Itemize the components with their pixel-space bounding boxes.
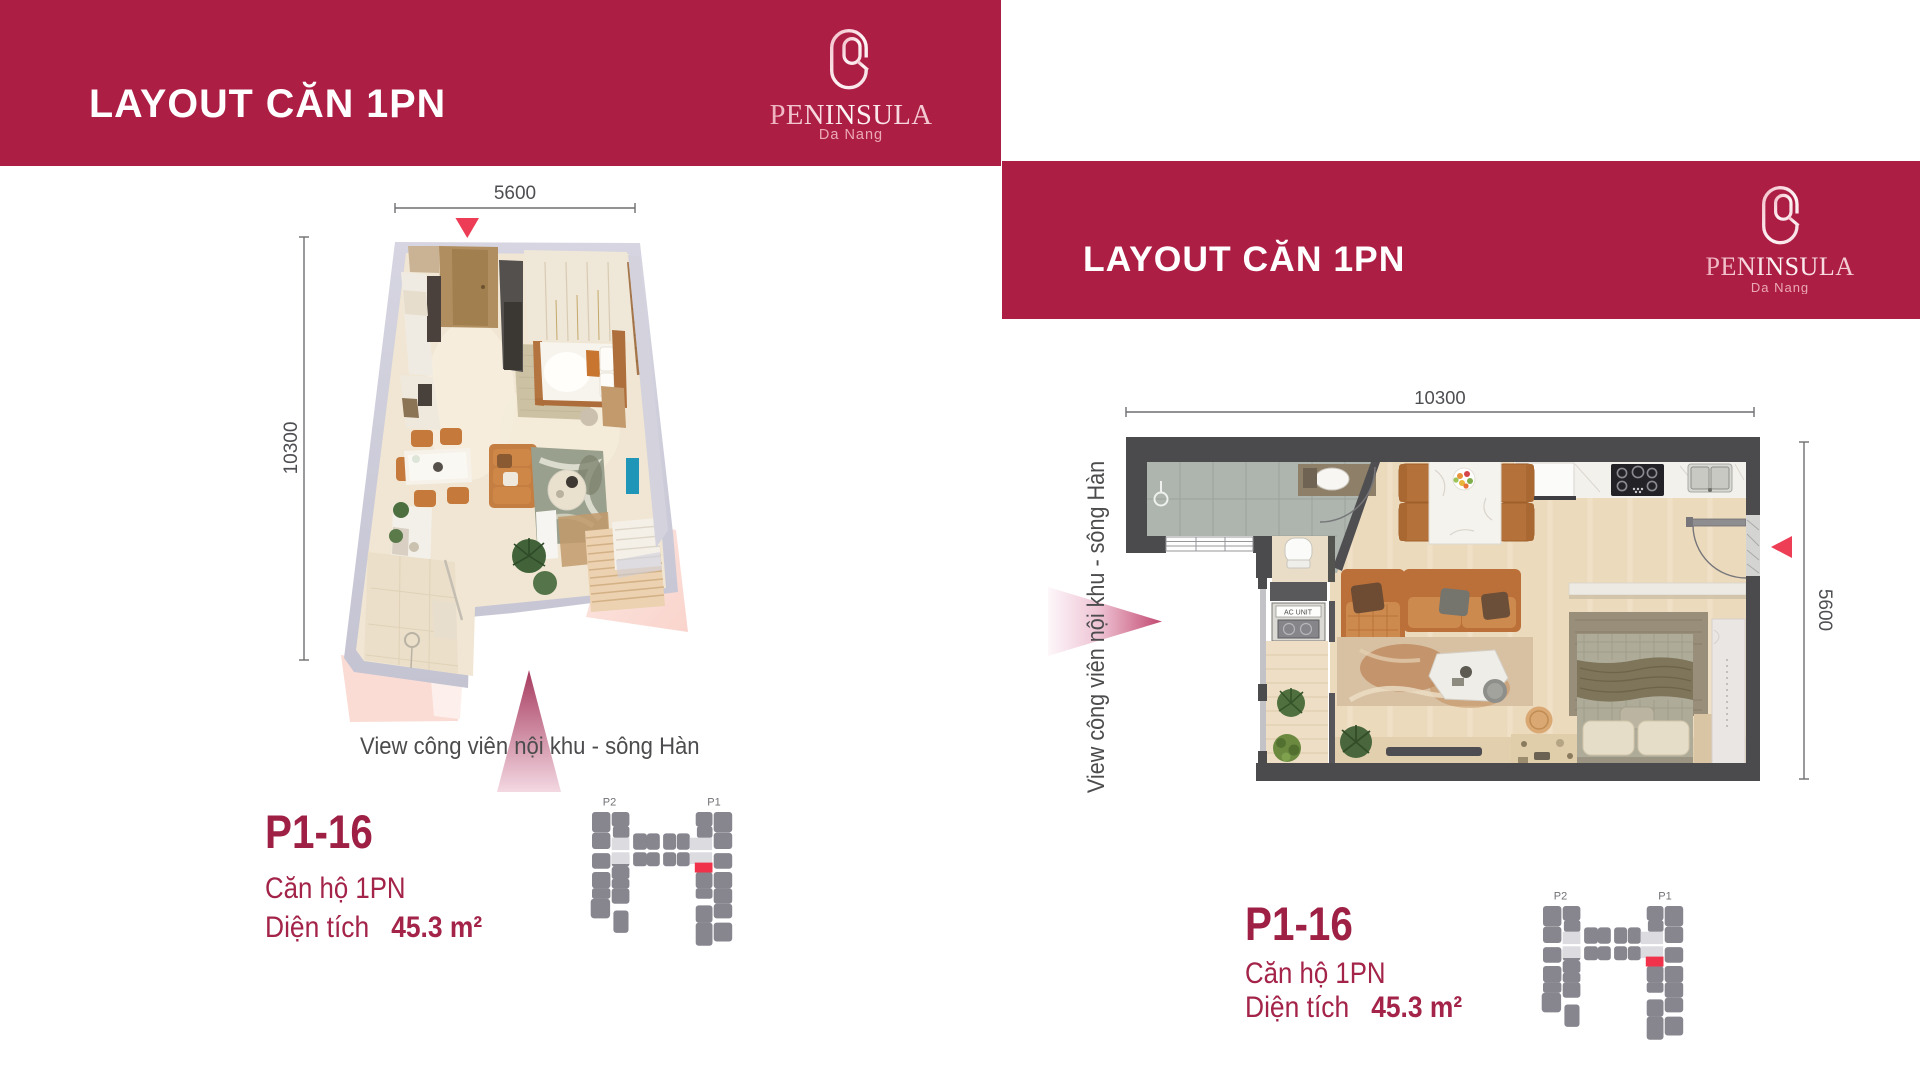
svg-text:10300: 10300 bbox=[1414, 387, 1465, 408]
svg-text:5600: 5600 bbox=[1814, 589, 1835, 631]
svg-text:PENINSULA: PENINSULA bbox=[1706, 252, 1854, 281]
svg-text:5600: 5600 bbox=[494, 183, 536, 204]
svg-text:AC UNIT: AC UNIT bbox=[1284, 610, 1313, 617]
svg-text:Da Nang: Da Nang bbox=[1751, 280, 1809, 294]
svg-text:Da Nang: Da Nang bbox=[819, 127, 883, 143]
svg-text:10300: 10300 bbox=[281, 422, 302, 475]
